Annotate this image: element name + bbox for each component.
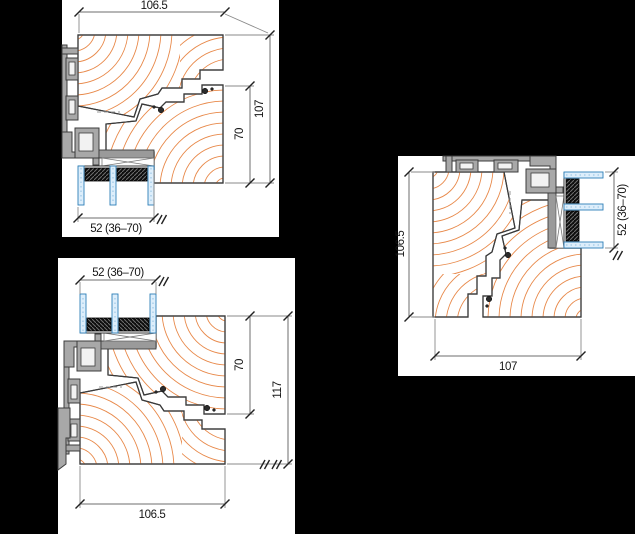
dim-label-head-glazing: 52 (36–70) <box>90 223 142 235</box>
dim-label-sill-total-height: 117 <box>272 381 284 398</box>
dim-label-head-width: 106.5 <box>141 0 168 12</box>
window-cross-sections-drawing: 106.5 107 70 52 (36–70) <box>0 0 635 534</box>
dim-label-jamb-glazing: 52 (36–70) <box>617 184 629 236</box>
dim-label-sill-glazing: 52 (36–70) <box>92 267 144 279</box>
dim-label-sill-width: 106.5 <box>139 509 166 521</box>
dim-label-sill-sash-height: 70 <box>234 359 246 371</box>
dim-label-jamb-height: 106.5 <box>395 231 407 258</box>
dim-label-head-total-height: 107 <box>254 100 266 118</box>
drawing-sheet: 106.5 107 70 52 (36–70) <box>0 0 635 534</box>
dim-label-head-sash-height: 70 <box>234 128 246 140</box>
dim-label-jamb-width: 107 <box>499 361 517 373</box>
